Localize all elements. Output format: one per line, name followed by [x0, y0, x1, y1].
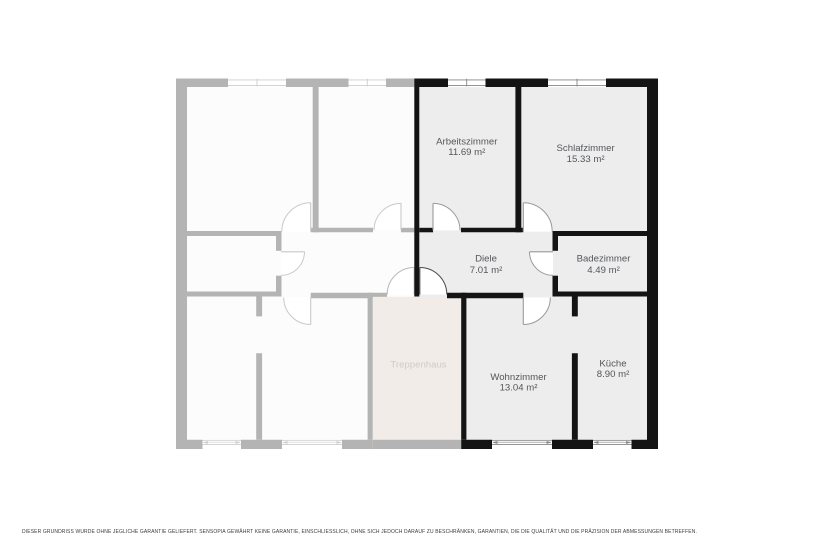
svg-text:Badezimmer: Badezimmer [577, 254, 632, 265]
svg-text:7.01 m²: 7.01 m² [470, 265, 503, 276]
svg-text:15.33 m²: 15.33 m² [567, 154, 606, 165]
svg-text:13.04 m²: 13.04 m² [500, 383, 539, 394]
svg-text:Schlafzimmer: Schlafzimmer [557, 143, 616, 154]
svg-text:Treppenhaus: Treppenhaus [390, 359, 446, 370]
svg-text:Wohnzimmer: Wohnzimmer [490, 372, 547, 383]
svg-text:11.69 m²: 11.69 m² [448, 147, 486, 158]
svg-text:Arbeitszimmer: Arbeitszimmer [436, 136, 498, 147]
svg-text:8.90 m²: 8.90 m² [597, 369, 630, 380]
svg-text:Diele: Diele [475, 254, 497, 265]
svg-text:DIESER GRUNDRISS WURDE OHNE JE: DIESER GRUNDRISS WURDE OHNE JEGLICHE GAR… [22, 528, 697, 535]
svg-text:Küche: Küche [599, 359, 626, 370]
svg-text:4.49 m²: 4.49 m² [587, 265, 620, 276]
